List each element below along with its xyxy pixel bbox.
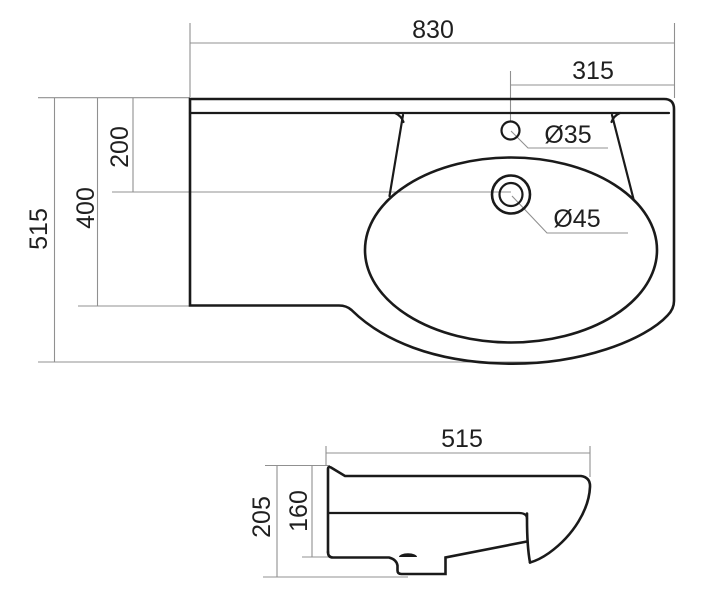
label-overall-height: 205	[248, 496, 276, 538]
faucet-hole-circle	[502, 122, 520, 140]
washbasin-technical-drawing: 830 315 515 400 200 Ø35 Ø45	[0, 0, 702, 600]
label-back-to-drain: 200	[106, 126, 134, 168]
technical-drawing-page: 830 315 515 400 200 Ø35 Ø45	[0, 0, 702, 600]
drain-hole-inner-circle	[500, 183, 523, 206]
label-body-height: 160	[285, 490, 313, 532]
profile-drain-hole-mark	[399, 553, 417, 557]
washbasin-plan-outline	[190, 99, 674, 364]
drain-hole-outer-circle	[492, 176, 530, 214]
profile-bowl-bottom-line	[329, 513, 527, 519]
profile-underside-and-trap	[328, 542, 527, 575]
profile-outer-silhouette	[328, 467, 590, 563]
profile-bowl-back-edge	[527, 514, 530, 563]
label-drain-hole-diameter: Ø45	[553, 205, 600, 233]
label-overall-width: 830	[412, 16, 454, 44]
bowl-ellipse	[365, 158, 657, 343]
label-faucet-offset: 315	[572, 57, 614, 85]
side-view-labels: 515 205 160	[248, 425, 483, 538]
top-view-labels: 830 315 515 400 200 Ø35 Ø45	[25, 16, 614, 250]
top-view: 830 315 515 400 200 Ø35 Ø45	[25, 16, 675, 364]
label-overall-depth: 515	[25, 208, 53, 250]
side-view: 515 205 160	[248, 425, 590, 577]
label-side-depth: 515	[441, 425, 483, 453]
label-faucet-hole-diameter: Ø35	[544, 121, 591, 149]
washbasin-profile-outline	[328, 467, 590, 574]
label-left-edge-depth: 400	[72, 187, 100, 229]
bowl-left-wall-line	[390, 115, 404, 196]
